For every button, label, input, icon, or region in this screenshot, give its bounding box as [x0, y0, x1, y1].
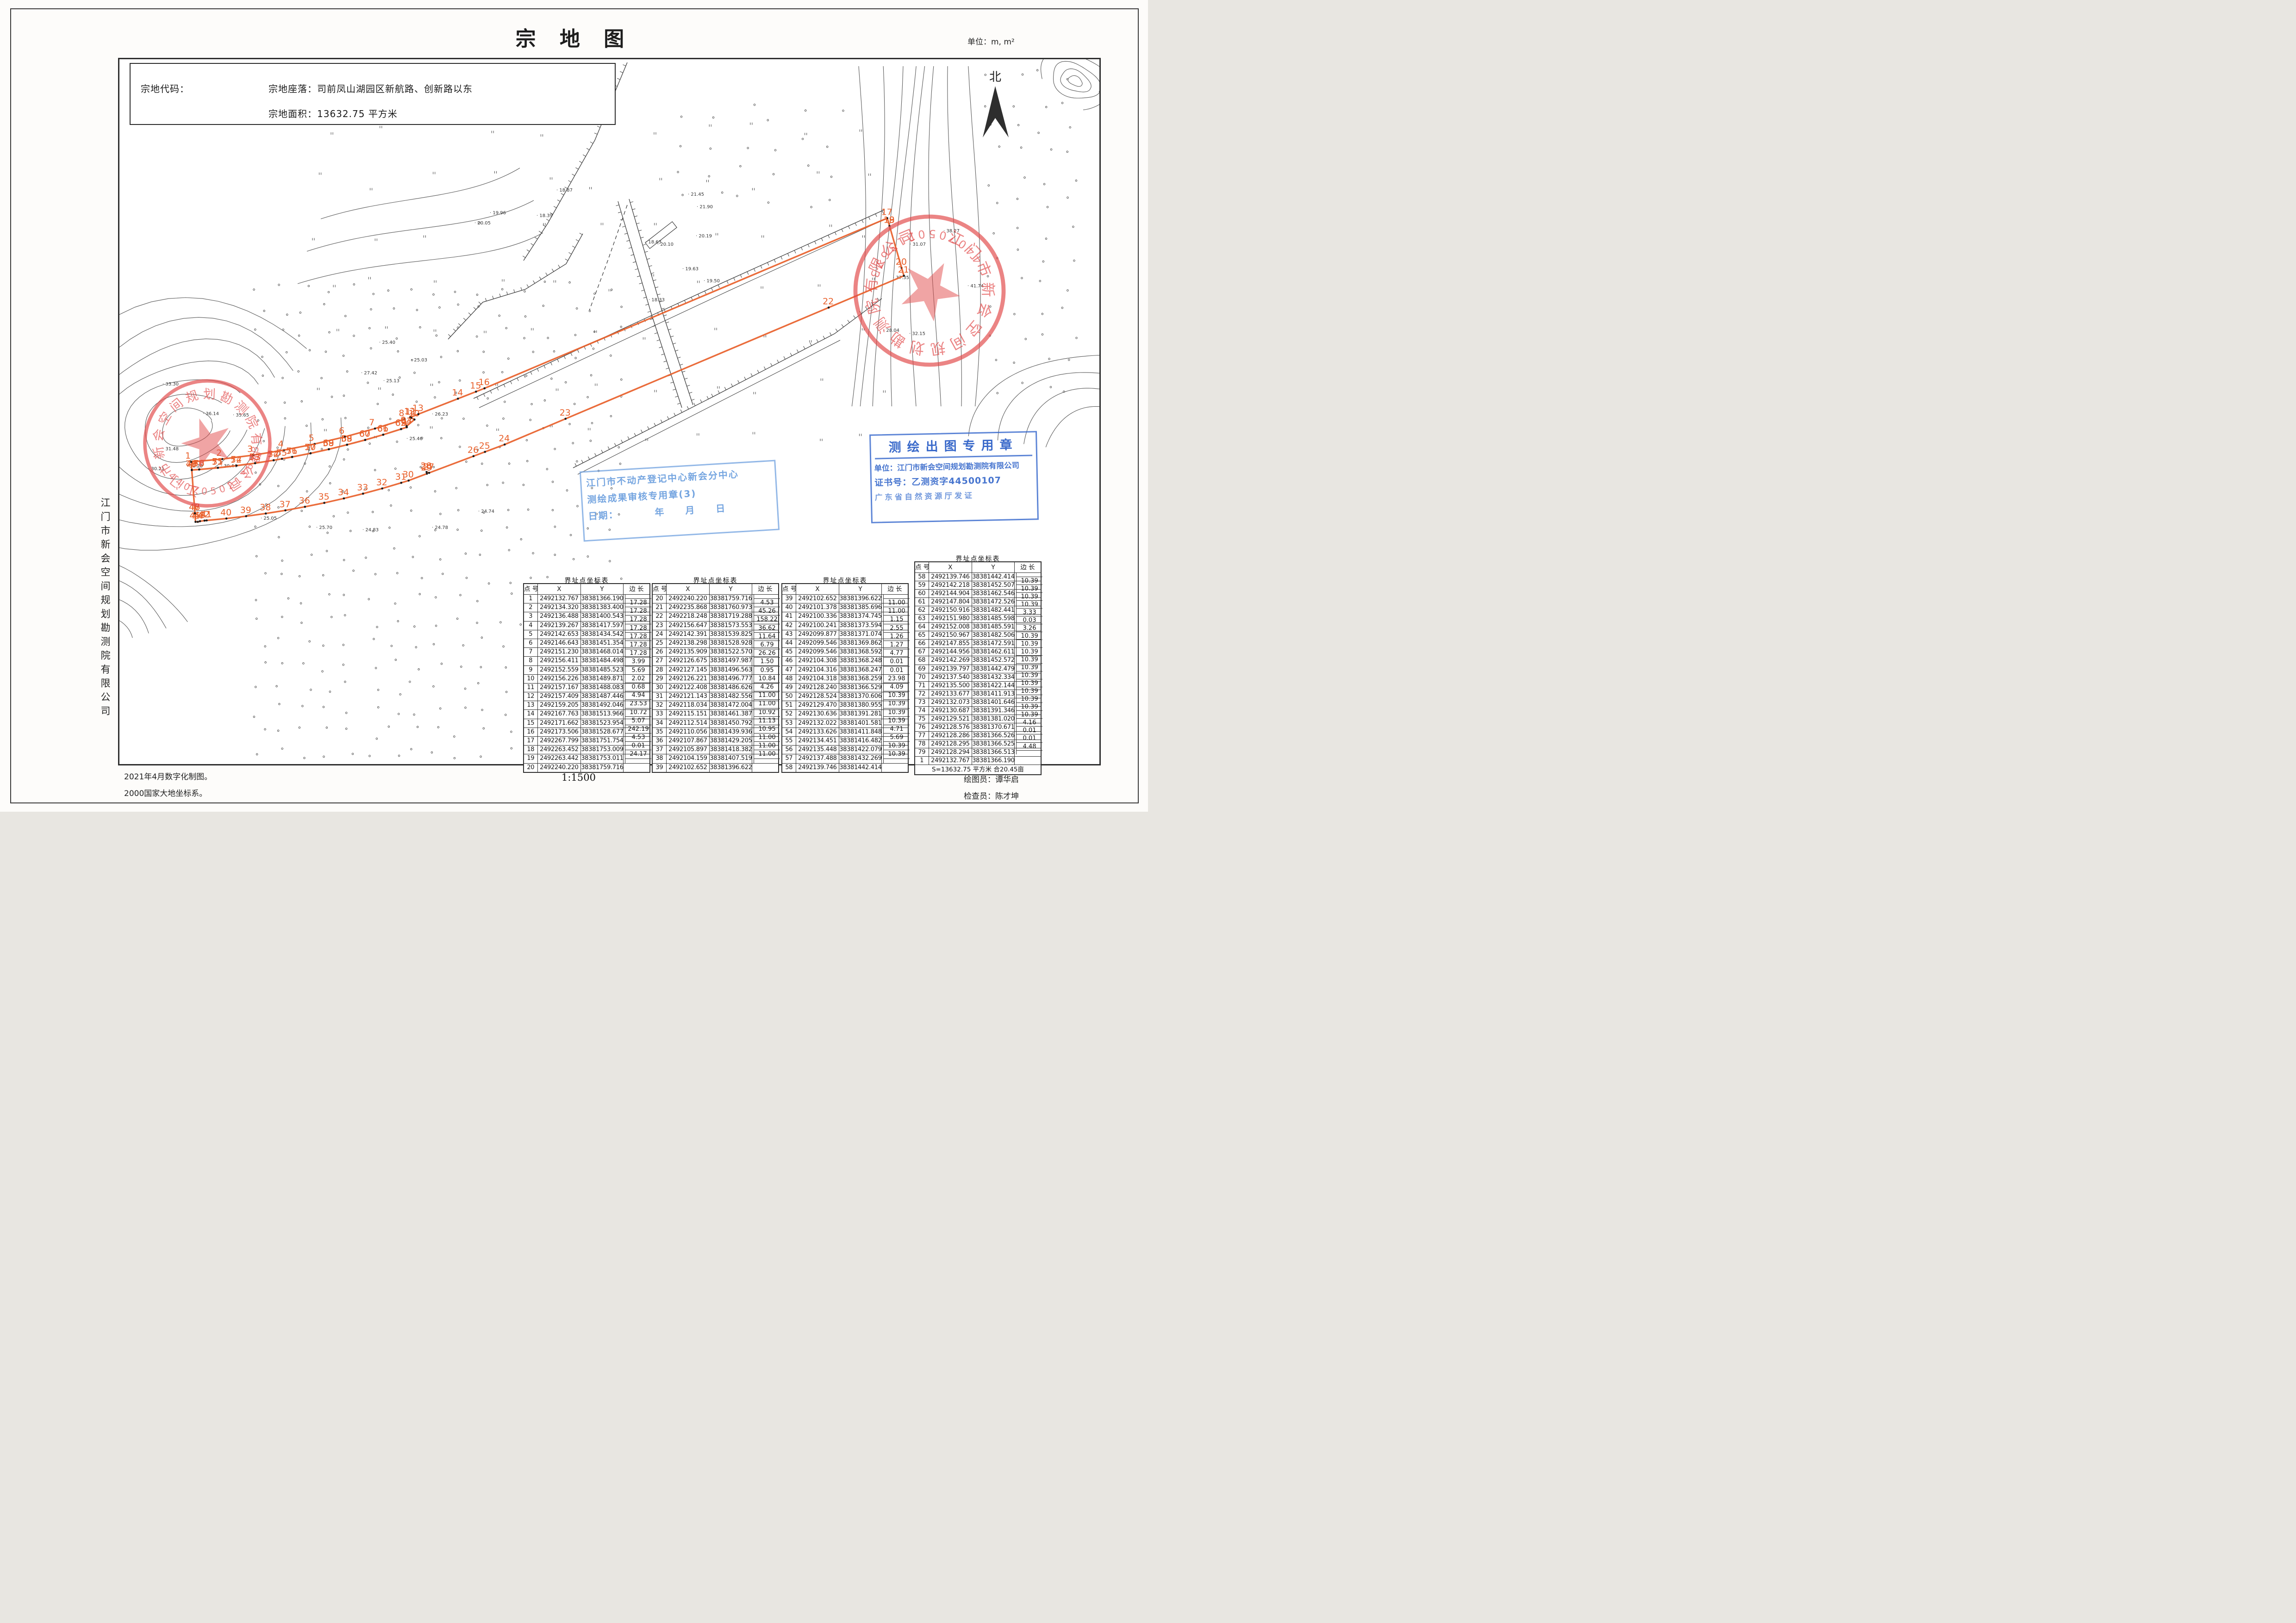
boundary-point-dot [265, 512, 267, 515]
coord-x: 2492139.267 [538, 622, 581, 630]
point-number: 50 [782, 692, 796, 701]
coord-x: 2492110.056 [667, 728, 710, 736]
spot-height: · 27.42 [361, 371, 377, 376]
boundary-point-label: 66 [377, 423, 388, 434]
coord-x: 2492173.506 [538, 728, 581, 736]
edge-length-value: 11.00 [754, 734, 780, 742]
edge-length-value: 11.64 [754, 633, 780, 641]
point-number: 37 [653, 746, 667, 754]
column-header: 点 号 [653, 584, 667, 594]
point-number: 48 [782, 675, 796, 683]
edge-length-value: 26.26 [754, 649, 780, 658]
coord-y: 38381496.777 [710, 675, 752, 683]
coord-x: 2492133.626 [796, 728, 840, 736]
boundary-point-dot [473, 455, 475, 457]
svg-text:0: 0 [218, 483, 227, 495]
svg-text:3: 3 [249, 446, 261, 453]
edge-length-slot [624, 764, 649, 772]
edge-length-column: 4.5345.26158.2236.6211.646.7926.261.500.… [754, 595, 780, 763]
north-label: 北 [989, 70, 1001, 84]
boundary-point-label: 19 [884, 215, 895, 225]
boundary-point-label: 34 [338, 487, 349, 497]
point-number: 44 [782, 639, 796, 647]
coord-y: 38381434.542 [581, 630, 624, 639]
export-stamp-cert: 证书号：乙测资字44500107 [874, 473, 1034, 488]
coord-x: 2492100.241 [796, 622, 840, 630]
boundary-point-dot [400, 428, 402, 430]
point-number: 78 [915, 740, 929, 748]
map-scale: 1:1500 [518, 772, 639, 783]
spot-height: · 25.13 [383, 379, 399, 384]
coord-x: 2492151.980 [929, 615, 973, 622]
boundary-point-label: 69 [323, 438, 334, 448]
coord-y: 38381391.346 [972, 707, 1015, 715]
boundary-point-label: 40 [220, 507, 231, 517]
point-number: 34 [653, 719, 667, 728]
coord-y: 38381482.506 [972, 631, 1015, 639]
coord-y: 38381401.646 [972, 698, 1015, 706]
coord-x: 2492156.411 [538, 657, 581, 665]
coord-x: 2492147.804 [929, 598, 973, 606]
coord-y: 38381489.871 [581, 675, 624, 683]
boundary-point-label: 16 [479, 377, 490, 387]
coord-y: 38381462.611 [972, 648, 1015, 656]
point-number: 62 [915, 606, 929, 614]
parcel-map-sheet: 宗 地 图 单位：m, m² · 33.30· 36.14· 31.48· 30… [0, 0, 1148, 812]
coord-x: 2492167.763 [538, 710, 581, 718]
point-number: 38 [653, 754, 667, 763]
boundary-point-dot [191, 469, 193, 471]
point-number: 29 [653, 675, 667, 683]
boundary-point-label: 38 [260, 503, 271, 513]
coord-y: 38381452.572 [972, 656, 1015, 664]
coord-x: 2492152.008 [929, 623, 973, 631]
point-number: 53 [782, 719, 796, 728]
boundary-point-label: 70 [305, 442, 316, 452]
boundary-point-dot [484, 451, 486, 453]
svg-text:会: 会 [974, 300, 996, 320]
point-number: 45 [782, 648, 796, 656]
point-number: 33 [653, 710, 667, 718]
edge-length-value: 17.28 [625, 599, 651, 607]
coord-x: 2492142.653 [538, 630, 581, 639]
spot-height: · 24.83 [362, 528, 379, 533]
coord-x: 2492100.336 [796, 612, 840, 621]
spot-height: · 18.87 [556, 188, 573, 193]
boundary-point-label: 37 [280, 499, 291, 510]
point-number: 30 [653, 684, 667, 692]
point-number: 32 [653, 701, 667, 709]
point-number: 60 [915, 590, 929, 597]
coord-y: 38381472.004 [710, 701, 752, 709]
edge-length-value: 0.01 [1017, 734, 1042, 742]
edge-length-value: 17.28 [625, 649, 651, 658]
coord-x: 2492118.034 [667, 701, 710, 709]
column-header: X [929, 562, 973, 572]
edge-length-value: 10.39 [1017, 585, 1042, 593]
point-number: 9 [524, 666, 538, 674]
coord-x: 2492104.308 [796, 657, 840, 665]
edge-length-value: 10.39 [1017, 656, 1042, 664]
coord-x: 2492139.797 [929, 665, 973, 673]
coord-x: 2492132.767 [929, 757, 973, 765]
coord-x: 2492132.073 [929, 698, 973, 706]
boundary-point-dot [381, 487, 383, 490]
point-number: 66 [915, 640, 929, 647]
column-header: X [796, 584, 840, 594]
point-number: 18 [524, 746, 538, 754]
parcel-info-box: 宗地代码： 宗地座落：司前凤山湖园区新航路、创新路以东 宗地面积：13632.7… [130, 63, 616, 125]
edge-length-value: 10.39 [1017, 695, 1042, 703]
point-number: 31 [653, 692, 667, 701]
parcel-boundary-layer: 1234567891011121314151617181920212223242… [185, 207, 909, 522]
point-number: 27 [653, 657, 667, 665]
boundary-point-label: 7 [369, 417, 374, 428]
point-number: 73 [915, 698, 929, 706]
boundary-point-dot [310, 452, 312, 454]
edge-length-value: 3.33 [1017, 609, 1042, 616]
edge-length-value: 3.26 [1017, 624, 1042, 632]
point-number: 12 [524, 692, 538, 701]
column-header: Y [972, 562, 1015, 572]
spot-height: · 32.15 [909, 331, 925, 336]
boundary-point-label: 29 [421, 463, 432, 473]
coord-y: 38381385.696 [839, 603, 882, 612]
red-seal: 江门市新会空间规划勘测院有限公司4407050213673 [129, 365, 286, 522]
coord-y: 38381488.083 [581, 684, 624, 692]
edge-length-value: 158.22 [754, 616, 780, 624]
edge-length-value: 0.68 [625, 683, 651, 691]
edge-length-value: 0.95 [754, 666, 780, 675]
coord-x: 2492146.643 [538, 639, 581, 647]
coord-y: 38381368.247 [839, 666, 882, 674]
svg-text:会: 会 [151, 428, 167, 442]
coord-x: 2492128.286 [929, 732, 973, 740]
coord-y: 38381442.414 [972, 573, 1015, 581]
edge-length-value: 1.15 [884, 616, 910, 624]
svg-text:间: 间 [947, 330, 968, 353]
point-number: 11 [524, 684, 538, 692]
coord-y: 38381468.014 [581, 648, 624, 656]
point-number: 70 [915, 673, 929, 681]
edge-length-value: 10.39 [1017, 577, 1042, 585]
spot-height: · 26.23 [432, 412, 448, 417]
coord-x: 2492240.220 [667, 595, 710, 603]
boundary-point-dot [504, 443, 506, 446]
coord-x: 2492156.647 [667, 622, 710, 630]
edge-length-column: 17.2817.2817.2817.2817.2817.2817.283.995… [625, 595, 651, 763]
coord-y: 38381485.591 [972, 623, 1015, 631]
coord-y: 38381366.513 [972, 748, 1015, 756]
coord-y: 38381429.205 [710, 737, 752, 745]
coord-y: 38381482.556 [710, 692, 752, 701]
coord-x: 2492102.652 [667, 764, 710, 772]
coord-x: 2492130.687 [929, 707, 973, 715]
svg-text:划: 划 [203, 387, 216, 402]
boundary-point-dot [374, 428, 376, 430]
spot-height: · 25.46 [406, 436, 423, 442]
boundary-point-label: 25 [479, 441, 490, 451]
svg-text:0: 0 [201, 485, 207, 497]
point-number: 79 [915, 748, 929, 756]
coord-x: 2492137.540 [929, 673, 973, 681]
boundary-point-dot [323, 502, 325, 504]
coord-y: 38381422.079 [839, 746, 882, 754]
edge-length-value: 10.39 [884, 700, 910, 708]
coord-x: 2492104.316 [796, 666, 840, 674]
point-number: 51 [782, 701, 796, 709]
edge-length-value: 11.00 [884, 607, 910, 616]
edge-length-value: 23.98 [884, 675, 910, 683]
spot-height: · 19.96 [490, 211, 506, 216]
boundary-point-dot [457, 398, 459, 400]
svg-text:新: 新 [151, 445, 168, 460]
coord-y: 38381391.281 [839, 710, 882, 718]
coord-x: 2492235.868 [667, 603, 710, 612]
coord-y: 38381371.074 [839, 630, 882, 639]
boundary-point-label: 14 [452, 388, 463, 398]
boundary-point-dot [903, 275, 905, 277]
parcel-area: 宗地面积：13632.75 平方米 [268, 106, 398, 120]
svg-text:有: 有 [249, 432, 264, 446]
coord-y: 38381482.441 [972, 606, 1015, 614]
review-stamp: 江门市不动产登记中心新会分中心 测绘成果审核专用章(3) 日期： 年 月 日 [580, 460, 780, 542]
edge-length-value: 4.77 [884, 649, 910, 658]
svg-text:空: 空 [962, 317, 986, 340]
column-header: 点 号 [782, 584, 796, 594]
boundary-point-label: 24 [499, 434, 510, 444]
point-number: 20 [653, 595, 667, 603]
coord-x: 2492099.877 [796, 630, 840, 639]
export-stamp-title: 测绘出图专用章 [874, 434, 1032, 459]
edge-length-value: 4.94 [625, 691, 651, 700]
edge-length-slot [1015, 757, 1041, 765]
edge-length-value: 11.00 [754, 742, 780, 750]
point-number: 23 [653, 622, 667, 630]
column-header: 边 长 [752, 584, 778, 594]
edge-length-value: 10.39 [1017, 632, 1042, 640]
boundary-point-label: 36 [299, 496, 310, 506]
column-header: Y [581, 584, 624, 594]
boundary-point-label: 21 [898, 265, 909, 275]
coord-y: 38381396.622 [710, 764, 752, 772]
coord-x: 2492126.221 [667, 675, 710, 683]
edge-length-value: 10.39 [1017, 664, 1042, 672]
coord-y: 38381400.543 [581, 612, 624, 621]
point-number: 6 [524, 639, 538, 647]
point-number: 26 [653, 648, 667, 656]
coord-y: 38381368.259 [839, 675, 882, 683]
coord-y: 38381373.594 [839, 622, 882, 630]
coordinate-table: 点 号XY边 长582492139.74638381442.4145924921… [914, 561, 1042, 775]
edge-length-value: 4.09 [884, 683, 910, 691]
spot-height: · 25.05 [261, 516, 277, 521]
coord-y: 38381472.526 [972, 598, 1015, 606]
coord-y: 38381539.825 [710, 630, 752, 639]
edge-length-value: 11.00 [754, 691, 780, 700]
boundary-point-dot [413, 418, 416, 421]
edge-length-value: 242.19 [625, 725, 651, 734]
boundary-point-dot [426, 473, 428, 475]
coord-y: 38381411.848 [839, 728, 882, 736]
point-number: 36 [653, 737, 667, 745]
coord-y: 38381366.525 [972, 740, 1015, 748]
coord-y: 38381407.519 [710, 754, 752, 763]
point-number: 5 [524, 630, 538, 639]
coord-x: 2492147.855 [929, 640, 973, 647]
point-number: 59 [915, 581, 929, 589]
column-header: 点 号 [524, 584, 538, 594]
edge-length-value: 10.39 [1017, 640, 1042, 648]
boundary-point-label: 22 [823, 297, 834, 307]
edge-length-value: 4.71 [884, 725, 910, 734]
edge-length-value: 11.00 [754, 750, 780, 759]
coord-x: 2492133.677 [929, 690, 973, 698]
coord-x: 2492134.320 [538, 603, 581, 612]
coord-y: 38381528.928 [710, 639, 752, 647]
edge-length-value: 10.39 [884, 709, 910, 717]
column-header: X [667, 584, 710, 594]
column-header: X [538, 584, 581, 594]
point-number: 75 [915, 715, 929, 723]
edge-length-value: 17.28 [625, 616, 651, 624]
checker-credit: 检查员：陈才坤 [964, 790, 1019, 801]
coord-y: 38381759.716 [581, 764, 624, 772]
edge-length-value: 0.01 [884, 666, 910, 675]
coord-y: 38381370.606 [839, 692, 882, 701]
coord-y: 38381528.677 [581, 728, 624, 736]
coord-x: 2492157.409 [538, 692, 581, 701]
edge-length-value: 11.00 [754, 700, 780, 708]
coord-y: 38381461.387 [710, 710, 752, 718]
point-number: 25 [653, 639, 667, 647]
coord-x: 2492105.897 [667, 746, 710, 754]
coord-y: 38381451.354 [581, 639, 624, 647]
edge-length-value: 24.17 [625, 750, 651, 759]
point-number: 20 [524, 764, 538, 772]
edge-length-value: 11.13 [754, 717, 780, 725]
svg-text:5: 5 [210, 485, 217, 497]
boundary-point-dot [483, 387, 486, 390]
edge-length-value: 17.28 [625, 624, 651, 633]
coord-y: 38381381.020 [972, 715, 1015, 723]
edge-length-value: 10.39 [1017, 593, 1042, 601]
coord-x: 2492128.524 [796, 692, 840, 701]
spot-height: · 19.50 [704, 279, 720, 284]
coord-y: 38381485.598 [972, 615, 1015, 622]
coord-y: 38381472.591 [972, 640, 1015, 647]
coord-y: 38381401.581 [839, 719, 882, 728]
spot-height: · 25.03 [411, 358, 427, 363]
spot-height: · 21.90 [697, 205, 713, 210]
coord-y: 38381417.597 [581, 622, 624, 630]
unit-label: 单位：m, m² [967, 35, 1015, 47]
table-row: 392492102.65238381396.622 [653, 763, 778, 772]
coord-x: 2492104.318 [796, 675, 840, 683]
boundary-point-dot [475, 391, 477, 393]
point-number: 22 [653, 612, 667, 621]
svg-text:0: 0 [917, 227, 926, 241]
point-number: 41 [782, 612, 796, 621]
point-number: 77 [915, 732, 929, 740]
coord-x: 2492107.867 [667, 737, 710, 745]
edge-length-value: 2.02 [625, 675, 651, 683]
note-datum: 2000国家大地坐标系。 [124, 787, 207, 798]
boundary-point-label: 35 [318, 492, 330, 502]
coord-x: 2492129.470 [796, 701, 840, 709]
point-number: 74 [915, 707, 929, 715]
coord-y: 38381484.498 [581, 657, 624, 665]
spot-height: · 36.14 [203, 411, 219, 417]
coord-y: 38381496.563 [710, 666, 752, 674]
edge-length-value: 10.39 [1017, 687, 1042, 695]
column-header: 边 长 [1015, 562, 1041, 572]
coord-x: 2492122.408 [667, 684, 710, 692]
column-header: 边 长 [624, 584, 649, 594]
edge-length-value: 45.26 [754, 607, 780, 616]
coord-y: 38381751.754 [581, 737, 624, 745]
boundary-point-dot [194, 521, 197, 523]
point-number: 76 [915, 723, 929, 731]
point-number: 7 [524, 648, 538, 656]
column-header: 边 长 [882, 584, 908, 594]
coord-x: 2492144.904 [929, 590, 973, 597]
coord-x: 2492142.269 [929, 656, 973, 664]
edge-length-value: 10.39 [1017, 679, 1042, 687]
coord-x: 2492129.521 [929, 715, 973, 723]
coord-y: 38381432.334 [972, 673, 1015, 681]
coord-y: 38381366.526 [972, 732, 1015, 740]
coord-x: 2492099.546 [796, 648, 840, 656]
coord-y: 38381452.507 [972, 581, 1015, 589]
point-number: 10 [524, 675, 538, 683]
boundary-point-label: 5 [309, 433, 314, 443]
spot-height: · 33.30 [162, 382, 179, 387]
coord-x: 2492136.488 [538, 612, 581, 621]
point-number: 1 [524, 595, 538, 603]
coord-y: 38381422.144 [972, 682, 1015, 690]
boundary-point-dot [281, 458, 283, 460]
edge-length-value: 0.03 [1017, 616, 1042, 624]
coord-y: 38381522.570 [710, 648, 752, 656]
edge-length-value: 10.39 [1017, 648, 1042, 656]
export-stamp-org: 单位：江门市新会空间规划勘测院有限公司 [874, 459, 1033, 473]
coord-x: 2492115.151 [667, 710, 710, 718]
coord-x: 2492132.022 [796, 719, 840, 728]
boundary-point-dot [364, 439, 367, 441]
edge-length-value: 6.79 [754, 641, 780, 649]
boundary-point-label: 33 [357, 483, 368, 493]
boundary-point-dot [291, 456, 293, 458]
coord-x: 2492135.500 [929, 682, 973, 690]
point-number: 54 [782, 728, 796, 736]
coord-y: 38381487.446 [581, 692, 624, 701]
edge-length-value: 11.00 [884, 599, 910, 607]
point-number: 39 [782, 595, 796, 603]
coord-x: 2492121.143 [667, 692, 710, 701]
point-number: 72 [915, 690, 929, 698]
spot-height: · 19.63 [682, 267, 699, 272]
spot-height: · 24.78 [432, 525, 448, 530]
coord-y: 38381485.523 [581, 666, 624, 674]
point-number: 40 [782, 603, 796, 612]
boundary-point-label: 23 [560, 408, 571, 418]
coord-x: 2492171.662 [538, 719, 581, 728]
boundary-point-dot [328, 448, 330, 450]
boundary-point-label: 79 [186, 459, 197, 469]
point-number: 15 [524, 719, 538, 728]
coord-y: 38381462.546 [972, 590, 1015, 597]
